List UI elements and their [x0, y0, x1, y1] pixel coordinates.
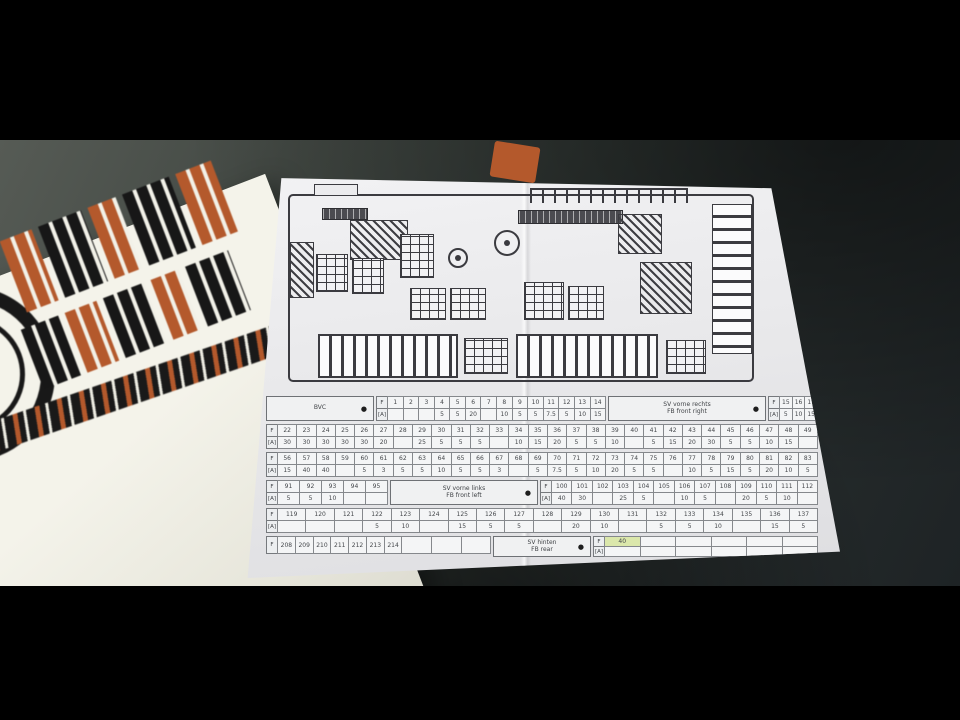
legend-cell: 10	[792, 408, 806, 421]
legend-table: F9192939495[A]5510	[266, 480, 388, 505]
legend-cell: 30	[316, 436, 336, 449]
legend-cell: 10	[586, 464, 606, 477]
legend-cell	[798, 436, 818, 449]
legend-cell: 10	[391, 520, 420, 533]
legend-cell: 20	[735, 492, 756, 505]
legend-cell: 7.5	[543, 408, 560, 421]
terminal-comb	[530, 188, 688, 203]
legend-cell: 25	[612, 492, 633, 505]
box-sv-rear: SV hintenFB rear●	[493, 536, 591, 557]
legend-cell: 5	[470, 436, 490, 449]
legend-cell: 5	[586, 436, 606, 449]
legend-group: F222324252627282930313233343536373839404…	[266, 424, 818, 449]
legend-cell: 10	[703, 520, 732, 533]
legend-cell: 15	[804, 408, 818, 421]
fuse-panel-diagram	[288, 188, 758, 386]
legend-cell	[393, 436, 413, 449]
round-connector	[448, 248, 468, 268]
legend-cell: 5	[451, 436, 471, 449]
legend-table: F40[A]	[593, 536, 818, 557]
legend-cell	[592, 492, 613, 505]
legend-group: F208209210211212213214SV hintenFB rear●F…	[266, 536, 818, 557]
legend-cell: 5	[434, 408, 451, 421]
legend-row: [A]51015	[768, 408, 818, 421]
legend-cell: 5	[470, 464, 490, 477]
legend-cell: 40	[296, 464, 316, 477]
legend-cell: 5	[798, 464, 818, 477]
legend-cell: 5	[646, 520, 675, 533]
legend-cell: 5	[643, 464, 663, 477]
panel-tab	[314, 184, 358, 196]
fuse-grid	[316, 254, 348, 292]
legend-table: F565758596061626364656667686970717273747…	[266, 452, 818, 477]
legend-cell: 10	[778, 464, 798, 477]
legend-cell: 5	[740, 436, 760, 449]
legend-cell: 5	[299, 492, 322, 505]
relay-block	[290, 242, 314, 298]
legend-cell	[431, 536, 462, 554]
legend-cell	[335, 464, 355, 477]
legend-cell	[343, 492, 366, 505]
legend-cell: 10	[574, 408, 591, 421]
legend-cell: 5	[675, 520, 704, 533]
legend-cell: 214	[384, 536, 403, 554]
legend-group: F119120121122123124125126127128129130131…	[266, 508, 818, 533]
legend-cell: 30	[277, 436, 297, 449]
connector-bar-small	[322, 208, 368, 220]
legend-cell	[508, 464, 528, 477]
legend-row: [A]552010557.551015	[376, 408, 606, 421]
legend-cell: 10	[682, 464, 702, 477]
legend-cell: 20	[682, 436, 702, 449]
legend-cell	[277, 520, 306, 533]
legend-row: [A]3030303030202555510152055105152030551…	[266, 436, 818, 449]
legend-group: F565758596061626364656667686970717273747…	[266, 452, 818, 477]
legend-cell: 10	[508, 436, 528, 449]
legend-cell: 15	[590, 408, 607, 421]
legend-cell: 5	[528, 464, 548, 477]
fuse-grid	[666, 340, 706, 374]
legend-cell: 210	[313, 536, 332, 554]
legend-cell: 209	[295, 536, 314, 554]
legend-cell: 20	[465, 408, 482, 421]
legend-cell: 15	[760, 520, 789, 533]
legend-cell: 5	[566, 436, 586, 449]
bullet-dot: ●	[753, 405, 759, 413]
fuse-column-right	[712, 204, 752, 354]
legend-table: F151617[A]51015	[768, 396, 818, 421]
legend-row: [A]5510	[266, 492, 388, 505]
legend-cell	[675, 546, 712, 557]
legend-table: F222324252627282930313233343536373839404…	[266, 424, 818, 449]
legend-table: F1234567891011121314[A]552010557.551015	[376, 396, 606, 421]
legend-cell: 5	[720, 436, 740, 449]
legend-cell	[618, 520, 647, 533]
legend-cell: 10	[674, 492, 695, 505]
legend-box-label: SV vorne linksFB front left	[443, 486, 486, 500]
legend-cell: 5	[624, 464, 644, 477]
legend-cell: 30	[354, 436, 374, 449]
relay-block	[618, 214, 662, 254]
legend-cell	[624, 436, 644, 449]
legend-cell: 20	[605, 464, 625, 477]
legend-cell: 10	[759, 436, 779, 449]
legend-cell: 5	[431, 436, 451, 449]
legend-table: F119120121122123124125126127128129130131…	[266, 508, 818, 533]
legend-cell	[461, 536, 492, 554]
photo-scene: BVC●F1234567891011121314[A]552010557.551…	[0, 140, 960, 586]
legend-box-label: SV hintenFB rear	[528, 540, 557, 554]
legend-cell: 5	[412, 464, 432, 477]
legend-cell	[711, 546, 748, 557]
bullet-dot: ●	[578, 543, 584, 551]
fuse-diagram-paper: BVC●F1234567891011121314[A]552010557.551…	[238, 172, 840, 578]
legend-cell: 5	[779, 408, 793, 421]
legend-cell: 5	[451, 464, 471, 477]
legend-cell: 10	[431, 464, 451, 477]
fuse-grid	[450, 288, 486, 320]
legend-group: F9192939495[A]5510SV vorne linksFB front…	[266, 480, 818, 505]
legend-cell: 211	[330, 536, 349, 554]
fuse-grid	[568, 286, 604, 320]
legend-cell: 5	[512, 408, 529, 421]
legend-row: [A]403025510520510	[540, 492, 818, 505]
legend-cell: 5	[566, 464, 586, 477]
legend-cell	[797, 492, 818, 505]
fuse-grid	[464, 338, 508, 374]
legend-cell	[365, 492, 388, 505]
fuse-grid	[352, 258, 384, 294]
box-bvc: BVC●	[266, 396, 374, 421]
legend-cell	[489, 436, 509, 449]
legend-cell: 10	[590, 520, 619, 533]
video-frame: BVC●F1234567891011121314[A]552010557.551…	[0, 0, 960, 720]
legend-cell: 5	[694, 492, 715, 505]
legend-cell	[419, 520, 448, 533]
legend-cell: 15	[720, 464, 740, 477]
bullet-dot: ●	[525, 489, 531, 497]
legend-cell: 212	[348, 536, 367, 554]
legend-cell: 5	[633, 492, 654, 505]
legend-cell: 5	[527, 408, 544, 421]
legend-cell: 5	[393, 464, 413, 477]
legend-cell: 25	[412, 436, 432, 449]
video-letterbox-top	[0, 0, 960, 140]
legend-cell	[480, 408, 497, 421]
fuse-bank-left	[318, 334, 458, 378]
legend-cell: 10	[605, 436, 625, 449]
legend-cell: 5	[643, 436, 663, 449]
relay-block	[640, 262, 692, 314]
legend-cell: 5	[362, 520, 391, 533]
video-letterbox-bottom	[0, 586, 960, 720]
legend-cell	[403, 408, 420, 421]
legend-cell: 5	[740, 464, 760, 477]
fuse-bank-right	[516, 334, 658, 378]
legend-cell: 5	[277, 492, 300, 505]
legend-cell: 5	[756, 492, 777, 505]
legend-cell: 20	[759, 464, 779, 477]
legend-cell: 10	[321, 492, 344, 505]
legend-cell: 30	[701, 436, 721, 449]
fuse-grid	[400, 234, 434, 278]
legend-box-label: SV vorne rechtsFB front right	[663, 402, 710, 416]
legend-cell: 15	[448, 520, 477, 533]
legend-cell	[732, 520, 761, 533]
fuse-grid	[524, 282, 564, 320]
legend-cell: 5	[558, 408, 575, 421]
legend-cell: 30	[571, 492, 592, 505]
legend-cell: 3	[489, 464, 509, 477]
legend-cell	[387, 408, 404, 421]
legend-cell	[653, 492, 674, 505]
legend-cell: 5	[504, 520, 533, 533]
legend-cell: 5	[354, 464, 374, 477]
legend-cell: 15	[528, 436, 548, 449]
connector-bar	[518, 210, 623, 224]
orange-object	[489, 141, 540, 184]
legend-cell: 15	[778, 436, 798, 449]
legend-cell: 5	[449, 408, 466, 421]
legend-cell: 30	[335, 436, 355, 449]
legend-cell	[533, 520, 562, 533]
paper-content: BVC●F1234567891011121314[A]552010557.551…	[238, 172, 840, 578]
legend-cell: 208	[277, 536, 296, 554]
legend-cell	[305, 520, 334, 533]
legend-cell	[715, 492, 736, 505]
legend-cell: 5	[789, 520, 818, 533]
legend-row: [A]15404053551055357.5510205510515520105	[266, 464, 818, 477]
legend-cell: 5	[476, 520, 505, 533]
legend-row: [A]510155520105510155	[266, 520, 818, 533]
legend-cell: 213	[366, 536, 385, 554]
legend-cell: 40	[551, 492, 572, 505]
bullet-dot: ●	[361, 405, 367, 413]
legend-row: [A]	[593, 546, 818, 557]
legend-cell: 3	[373, 464, 393, 477]
legend-cell	[401, 536, 432, 554]
legend-cell: 10	[776, 492, 797, 505]
legend-cell: 15	[277, 464, 297, 477]
legend-row: F208209210211212213214	[266, 536, 491, 554]
legend-cell	[782, 546, 819, 557]
legend-cell	[418, 408, 435, 421]
round-connector	[494, 230, 520, 256]
box-sv-front-left: SV vorne linksFB front left●	[390, 480, 538, 505]
legend-cell	[663, 464, 683, 477]
legend-cell	[334, 520, 363, 533]
fuse-grid	[410, 288, 446, 320]
legend-cell: 40	[316, 464, 336, 477]
box-sv-front-right: SV vorne rechtsFB front right●	[608, 396, 766, 421]
legend-cell: 15	[663, 436, 683, 449]
legend-group: BVC●F1234567891011121314[A]552010557.551…	[266, 396, 818, 421]
legend-cell	[640, 546, 677, 557]
legend-cell: 20	[561, 520, 590, 533]
legend-cell: 20	[373, 436, 393, 449]
legend-cell	[604, 546, 641, 557]
legend-box-label: BVC	[314, 405, 326, 412]
legend-tables: BVC●F1234567891011121314[A]552010557.551…	[266, 396, 818, 560]
legend-cell: 30	[296, 436, 316, 449]
legend-cell: 10	[496, 408, 513, 421]
legend-cell	[746, 546, 783, 557]
legend-cell: 20	[547, 436, 567, 449]
legend-cell: 5	[701, 464, 721, 477]
legend-table: F100101102103104105106107108109110111112…	[540, 480, 818, 505]
legend-cell: 7.5	[547, 464, 567, 477]
legend-table: F208209210211212213214	[266, 536, 491, 557]
